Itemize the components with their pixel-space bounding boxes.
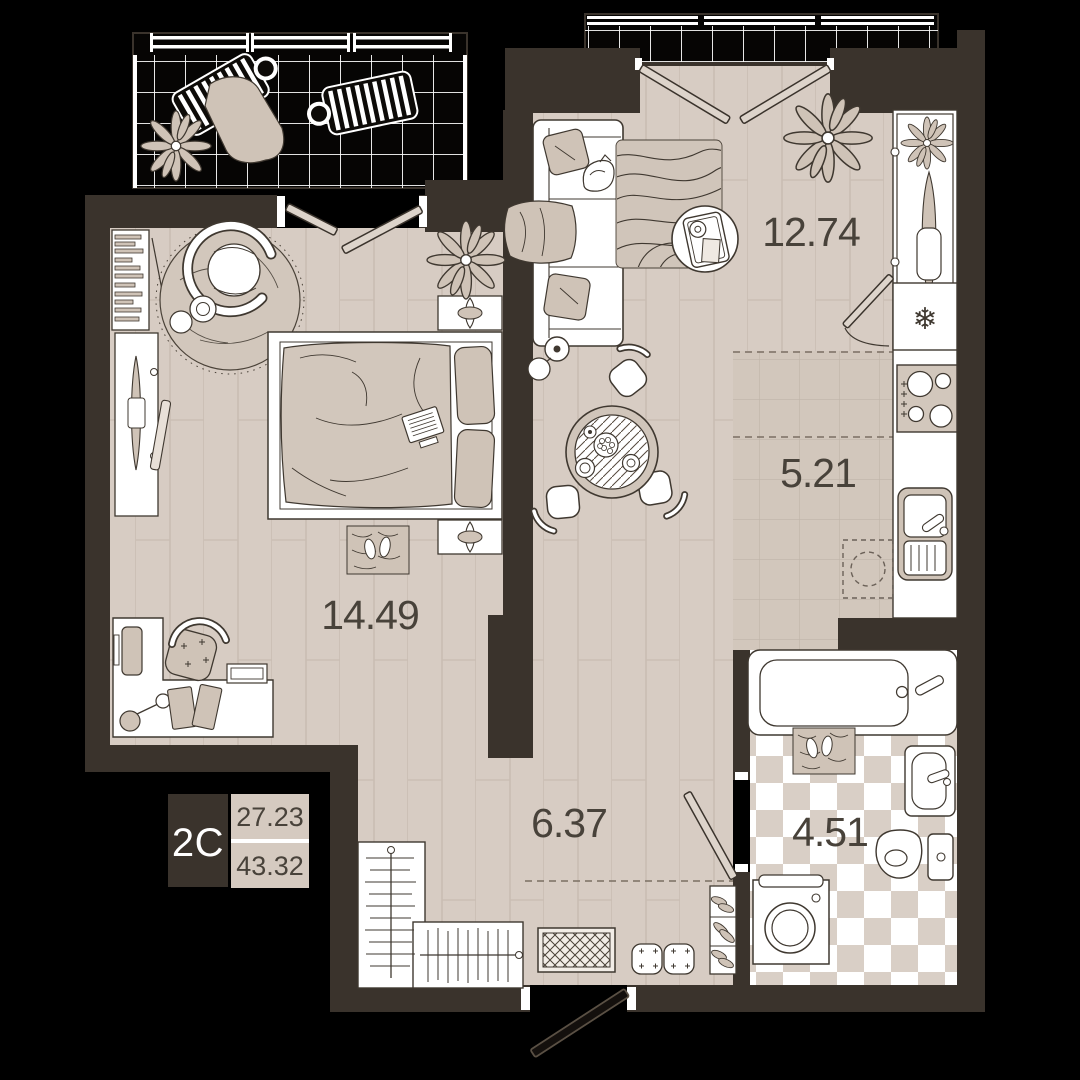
nightstand	[438, 520, 502, 554]
tv-console	[115, 333, 158, 516]
unit-legend: 2C 27.23 43.32	[168, 794, 309, 888]
pillow	[454, 346, 495, 425]
plant	[784, 94, 872, 182]
floorplan-root: ❄	[0, 0, 1080, 1080]
monitor	[122, 627, 142, 675]
kitchen-floor	[733, 351, 893, 650]
hallway-area-label: 6.37	[531, 800, 607, 846]
nightstand	[438, 296, 502, 330]
kitchen-area-label: 5.21	[780, 450, 856, 496]
bathroom-area-label: 4.51	[792, 809, 868, 855]
bedside-rug	[347, 526, 409, 574]
washing-machine	[753, 875, 829, 964]
toilet	[876, 830, 953, 880]
balcony-left	[133, 33, 467, 188]
fridge: ❄	[893, 283, 957, 350]
floor-plan-canvas: ❄	[0, 0, 1080, 1080]
bath-mat	[793, 728, 855, 774]
picture-frame	[227, 664, 267, 683]
side-table	[190, 296, 216, 322]
cushion	[543, 273, 591, 321]
coffee-table	[672, 206, 738, 272]
cushion	[542, 128, 590, 176]
plant	[141, 111, 211, 181]
unit-area-lower: 43.32	[236, 851, 304, 881]
bedroom-area-label: 14.49	[321, 592, 419, 638]
shoe-rack	[710, 886, 736, 974]
bathtub	[748, 650, 957, 735]
snowflake-icon: ❄	[912, 302, 937, 337]
pouf	[632, 944, 662, 974]
kitchen-sink	[898, 488, 952, 580]
blanket	[504, 201, 576, 263]
bed	[268, 332, 502, 519]
doormat	[538, 928, 615, 972]
plant	[901, 117, 953, 169]
plant	[427, 221, 505, 299]
pouf	[664, 944, 694, 974]
living-room-area-label: 12.74	[762, 209, 860, 255]
bathroom-sink	[905, 746, 955, 816]
unit-type-label: 2C	[172, 821, 224, 865]
stove	[897, 365, 957, 432]
pillow	[454, 429, 495, 508]
unit-area-upper: 27.23	[236, 802, 304, 832]
